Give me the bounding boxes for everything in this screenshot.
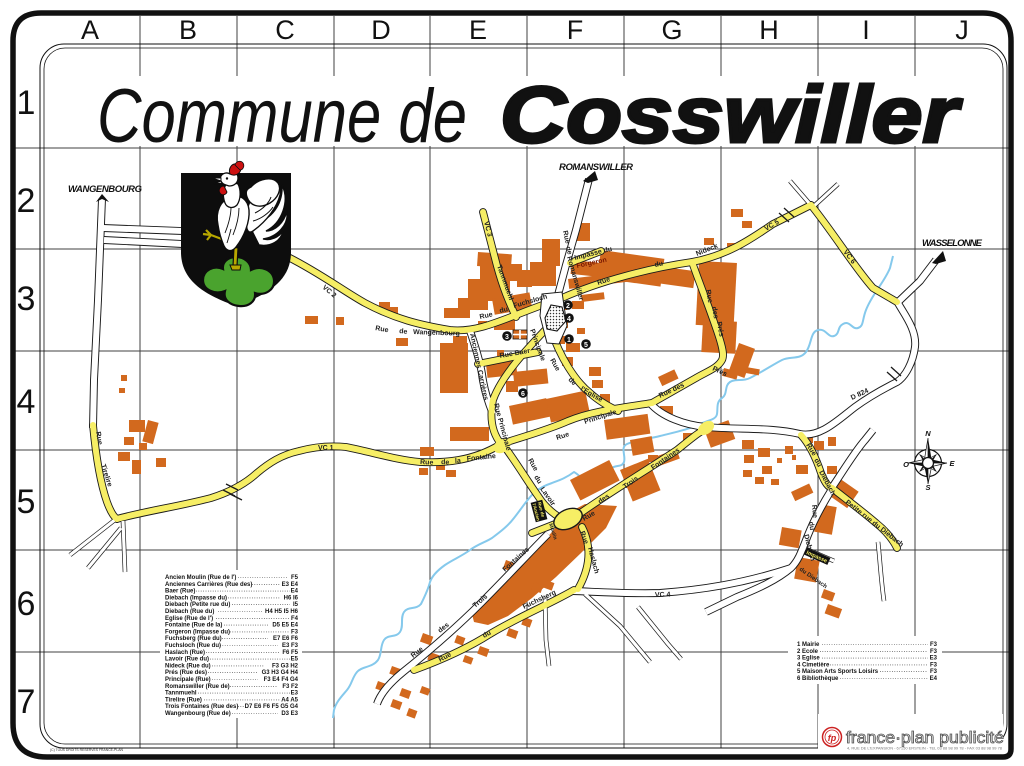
svg-text:E3 E4: E3 E4 — [282, 582, 299, 588]
svg-text:O: O — [903, 460, 909, 469]
svg-text:D3 E3: D3 E3 — [281, 711, 298, 717]
svg-text:1 Mairie: 1 Mairie — [797, 642, 820, 648]
svg-text:Nideck (Rue du): Nideck (Rue du) — [165, 663, 211, 669]
svg-text:ROMANSWILLER: ROMANSWILLER — [559, 162, 633, 173]
svg-text:de: de — [441, 459, 450, 466]
svg-text:J: J — [955, 15, 969, 45]
svg-text:3: 3 — [505, 334, 509, 341]
svg-text:VC 4: VC 4 — [655, 591, 671, 599]
svg-text:Baer (Rue): Baer (Rue) — [165, 589, 195, 595]
svg-text:F3 G3 H2: F3 G3 H2 — [272, 663, 299, 669]
svg-text:Diebach (Petite rue du): Diebach (Petite rue du) — [165, 602, 230, 608]
svg-text:france·plan publicité: france·plan publicité — [846, 729, 1004, 747]
svg-text:Fuchsberg (Rue du): Fuchsberg (Rue du) — [165, 636, 222, 642]
svg-text:Tannmuehl: Tannmuehl — [165, 691, 197, 697]
svg-text:4: 4 — [567, 316, 571, 323]
svg-text:3: 3 — [17, 280, 36, 318]
svg-text:Principale (Rue): Principale (Rue) — [165, 677, 211, 683]
svg-text:E: E — [469, 15, 487, 45]
svg-text:E4: E4 — [291, 589, 299, 595]
svg-text:VC 1: VC 1 — [318, 445, 334, 452]
svg-text:7: 7 — [17, 683, 36, 721]
svg-text:2: 2 — [566, 303, 570, 310]
svg-text:F3 F2: F3 F2 — [282, 684, 298, 690]
svg-text:Fuchsloch (Rue du): Fuchsloch (Rue du) — [165, 643, 221, 649]
svg-text:la: la — [455, 458, 461, 465]
svg-text:Rue: Rue — [420, 459, 434, 467]
svg-text:Haslach (Rue): Haslach (Rue) — [165, 650, 205, 656]
svg-text:Forgeron (Impasse du): Forgeron (Impasse du) — [165, 629, 230, 635]
svg-text:F3: F3 — [291, 629, 299, 635]
svg-text:F3: F3 — [930, 669, 938, 675]
svg-text:2 Ecole: 2 Ecole — [797, 649, 819, 655]
svg-text:E4: E4 — [930, 676, 938, 682]
svg-text:H: H — [759, 15, 779, 45]
svg-text:du: du — [807, 521, 815, 530]
svg-text:Lavoir (Rue du): Lavoir (Rue du) — [165, 657, 209, 663]
svg-text:H4 H5 I5 H6: H4 H5 I5 H6 — [265, 609, 299, 615]
svg-text:F4: F4 — [291, 616, 299, 622]
svg-text:4, RUE DE L'EXPANSION - 67150: 4, RUE DE L'EXPANSION - 67150 ERSTEIN - … — [847, 746, 1003, 751]
svg-text:5: 5 — [584, 342, 588, 349]
svg-text:Commune de: Commune de — [97, 74, 467, 159]
svg-text:(C) TOUS DROITS RESERVES FRANC: (C) TOUS DROITS RESERVES FRANCE-PLAN — [50, 748, 123, 752]
svg-text:1: 1 — [567, 337, 571, 344]
svg-text:F: F — [567, 15, 584, 45]
svg-text:E3: E3 — [291, 691, 299, 697]
svg-text:2: 2 — [17, 182, 36, 220]
svg-text:E3 F3: E3 F3 — [282, 643, 299, 649]
svg-text:3 Eglise: 3 Eglise — [797, 656, 820, 662]
svg-text:1: 1 — [17, 84, 36, 122]
svg-text:Tirelire (Rue): Tirelire (Rue) — [165, 697, 202, 703]
svg-text:Prés (Rue des): Prés (Rue des) — [165, 670, 207, 676]
svg-text:E3: E3 — [930, 656, 938, 662]
svg-text:Fontaine (Rue de la): Fontaine (Rue de la) — [165, 623, 222, 629]
svg-text:F5: F5 — [291, 575, 299, 581]
svg-text:6: 6 — [17, 585, 36, 623]
svg-text:WASSELONNE: WASSELONNE — [922, 238, 983, 249]
svg-text:6 Bibliothèque: 6 Bibliothèque — [797, 676, 839, 682]
svg-text:4 Cimetière: 4 Cimetière — [797, 662, 830, 668]
svg-text:F6 F5: F6 F5 — [282, 650, 298, 656]
svg-text:C: C — [275, 15, 295, 45]
svg-text:D7 E6 F6 F5 G5 G4: D7 E6 F6 F5 G5 G4 — [245, 704, 299, 710]
svg-text:de: de — [399, 328, 408, 336]
svg-text:Diebach (Rue du): Diebach (Rue du) — [165, 609, 214, 615]
svg-text:Diebach (Impasse du): Diebach (Impasse du) — [165, 595, 227, 601]
svg-text:Wangenbourg (Rue de): Wangenbourg (Rue de) — [165, 711, 231, 717]
svg-text:B: B — [179, 15, 197, 45]
svg-text:Anciennes Carrières (Rue des): Anciennes Carrières (Rue des) — [165, 582, 252, 588]
svg-text:6: 6 — [521, 391, 525, 398]
svg-text:D: D — [371, 15, 391, 45]
svg-text:F3: F3 — [930, 649, 938, 655]
svg-text:4: 4 — [17, 383, 36, 421]
svg-text:F3: F3 — [930, 662, 938, 668]
svg-text:S: S — [925, 483, 930, 492]
svg-text:N: N — [925, 429, 931, 438]
svg-text:A4 A5: A4 A5 — [281, 697, 298, 703]
svg-text:Romanswiller (Rue de): Romanswiller (Rue de) — [165, 684, 230, 690]
svg-text:I: I — [862, 15, 870, 45]
svg-text:A: A — [81, 15, 99, 45]
svg-text:H6 I6: H6 I6 — [284, 595, 299, 601]
svg-text:5: 5 — [17, 483, 36, 521]
svg-text:D5 E5 E4: D5 E5 E4 — [272, 623, 298, 629]
svg-text:Eglise (Rue de l'): Eglise (Rue de l') — [165, 616, 213, 622]
svg-text:F3: F3 — [930, 642, 938, 648]
svg-text:F3 E4 F4 G4: F3 E4 F4 G4 — [264, 677, 299, 683]
svg-text:5 Maison Arts Sports Loisirs: 5 Maison Arts Sports Loisirs — [797, 669, 879, 675]
svg-text:G: G — [661, 15, 682, 45]
svg-text:Ancien Moulin (Rue de l'): Ancien Moulin (Rue de l') — [165, 575, 236, 581]
svg-text:E7 E6 F6: E7 E6 F6 — [273, 636, 299, 642]
svg-text:E5: E5 — [291, 657, 299, 663]
svg-text:WANGENBOURG: WANGENBOURG — [68, 184, 143, 195]
svg-text:G3 H3 G4 H4: G3 H3 G4 H4 — [262, 670, 299, 676]
svg-text:I5: I5 — [293, 602, 299, 608]
svg-text:Rue: Rue — [810, 505, 818, 519]
svg-text:fp: fp — [828, 733, 837, 743]
svg-text:Cosswiller: Cosswiller — [500, 70, 962, 159]
svg-text:Trois Fontaines (Rue des): Trois Fontaines (Rue des) — [165, 704, 238, 710]
